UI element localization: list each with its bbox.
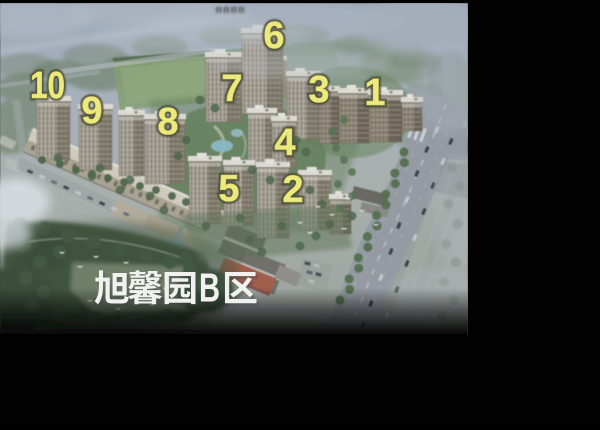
svg-text:3: 3 [308,69,329,111]
svg-text:6: 6 [263,15,284,57]
svg-text:B: B [199,265,220,311]
svg-text:2: 2 [282,169,303,211]
svg-text:10: 10 [30,65,65,107]
svg-text:7: 7 [221,68,242,110]
svg-text:9: 9 [81,90,102,132]
svg-text:5: 5 [218,168,239,210]
svg-text:4: 4 [274,122,295,164]
svg-text:8: 8 [157,101,178,143]
svg-text:1: 1 [364,72,385,114]
